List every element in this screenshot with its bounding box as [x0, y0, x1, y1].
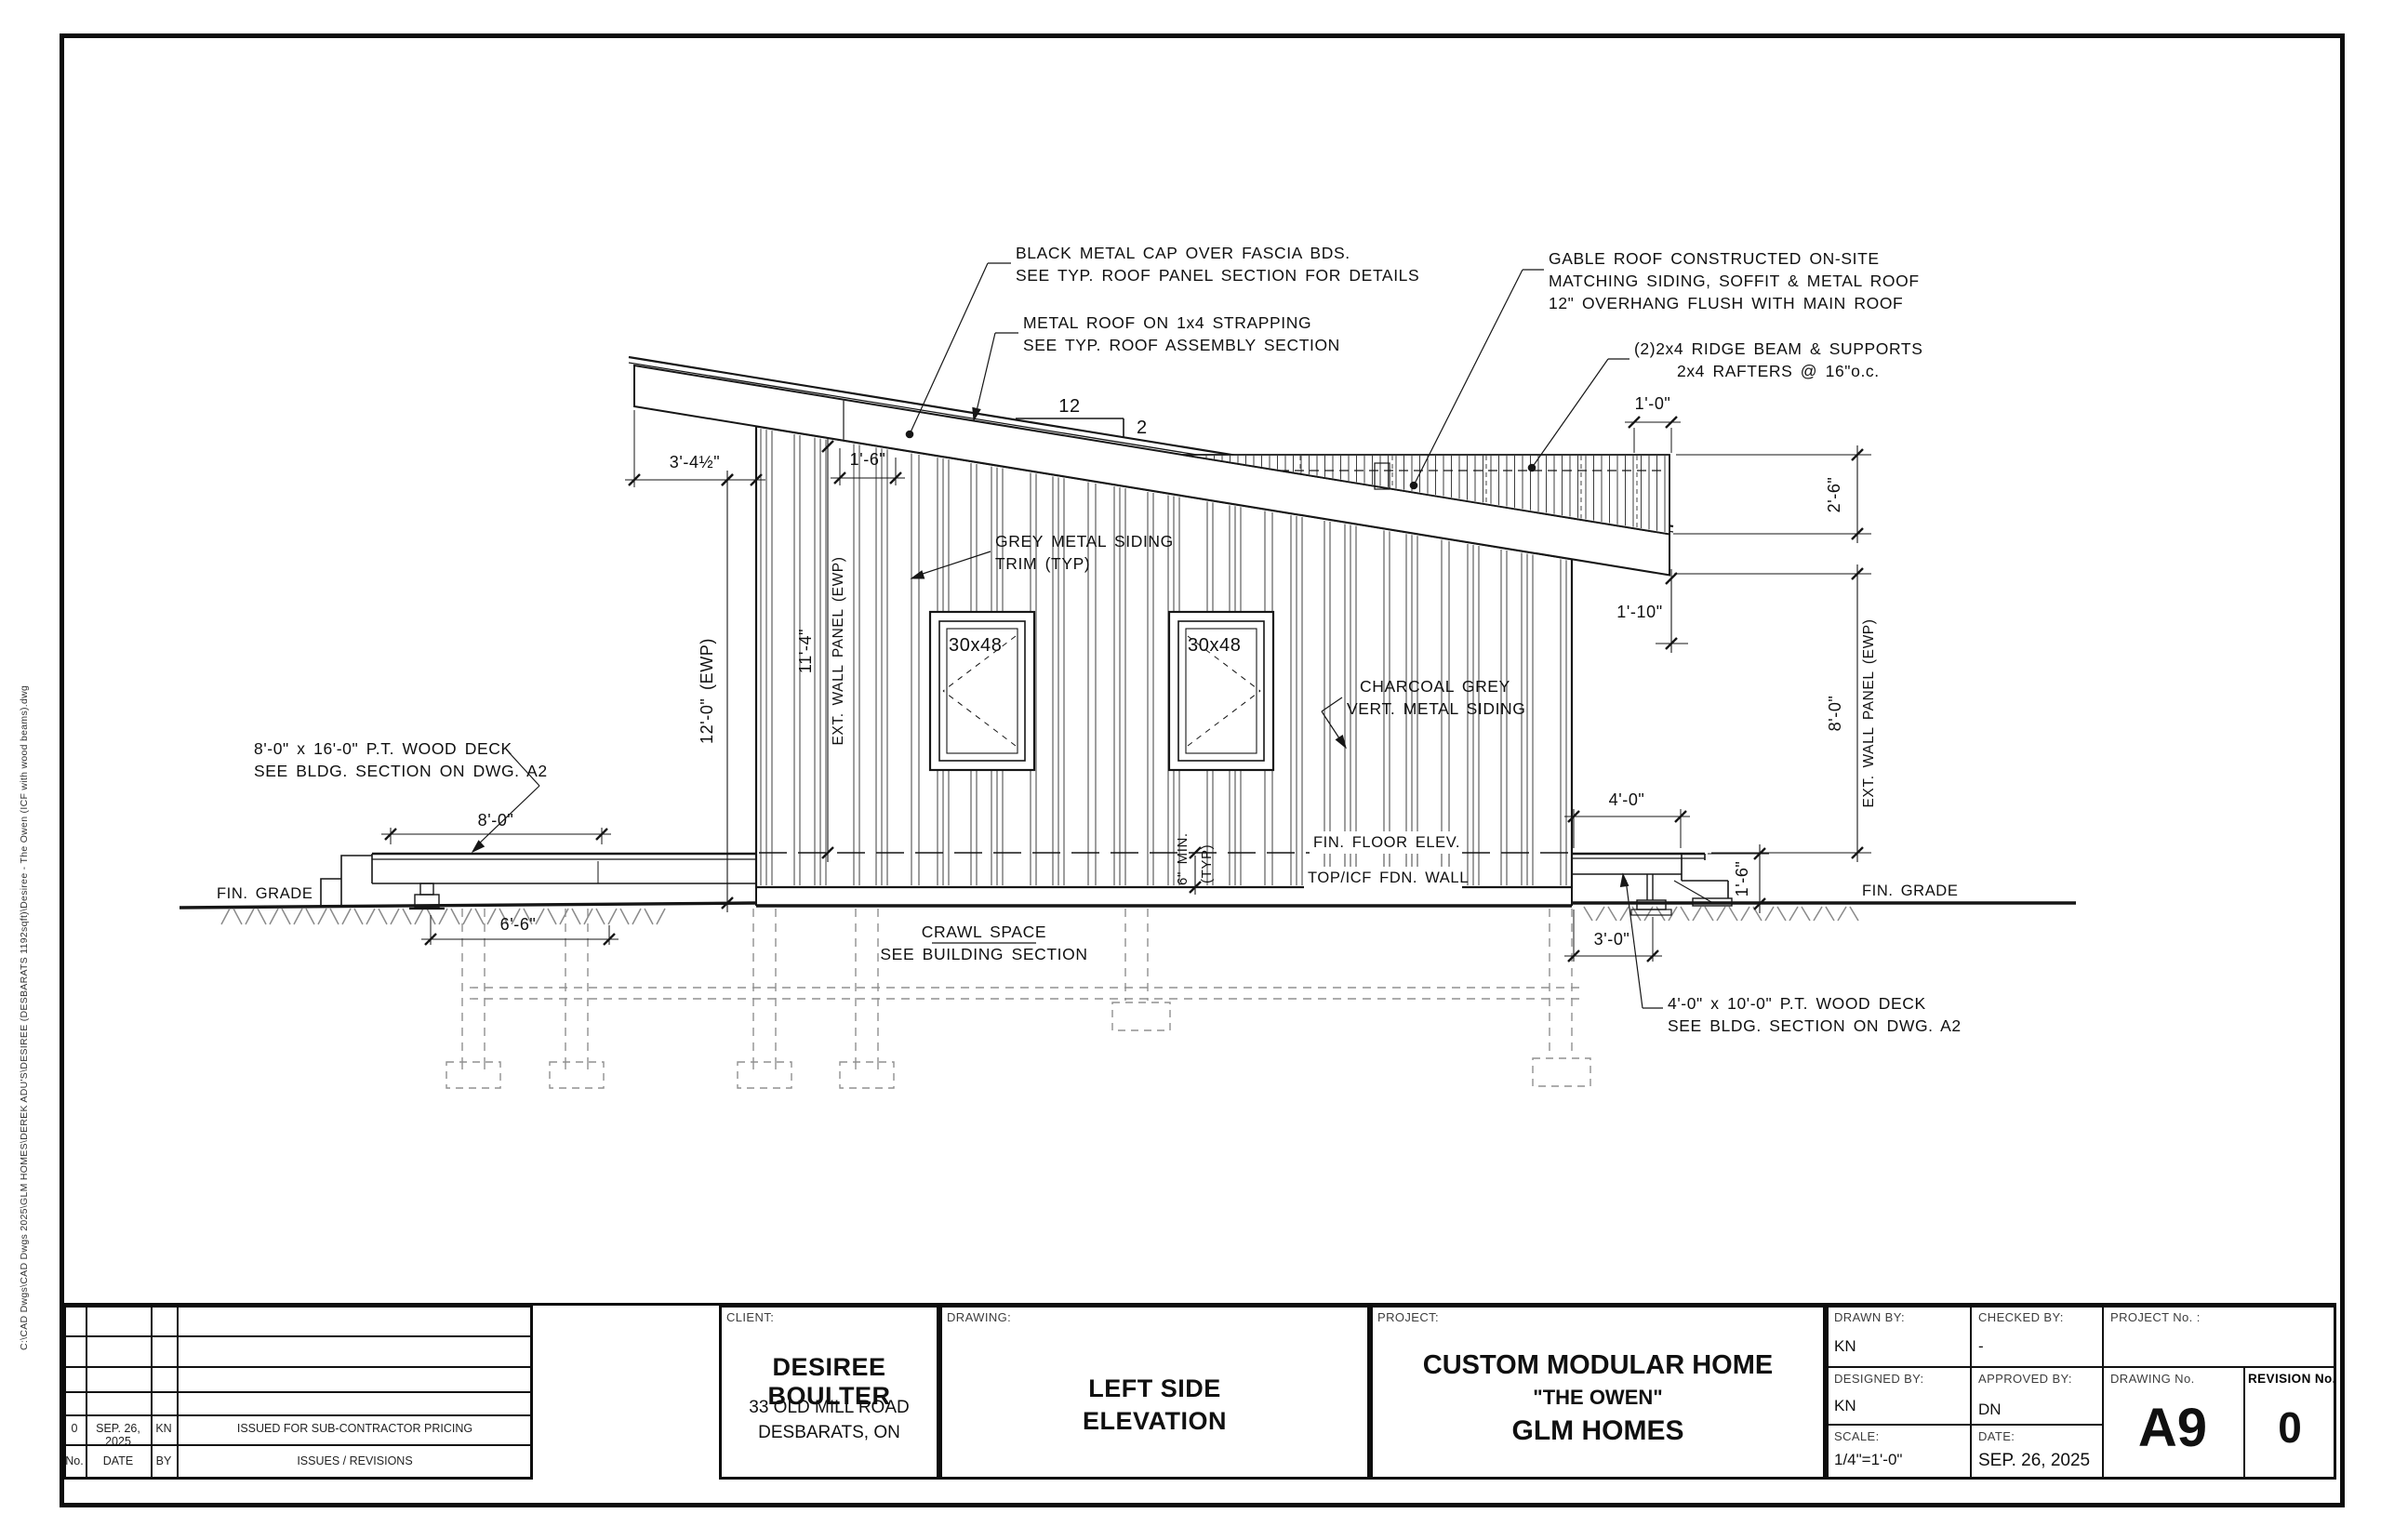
line — [1741, 907, 1749, 921]
line — [487, 909, 496, 924]
project-no-label: PROJECT No. : — [2110, 1310, 2201, 1324]
approved-by-label: APPROVED BY: — [1978, 1372, 2072, 1386]
line — [1596, 907, 1604, 921]
line — [572, 909, 580, 924]
line — [657, 909, 665, 924]
drawing-no-label: DRAWING No. — [2110, 1372, 2195, 1386]
deck-steps-left — [321, 856, 372, 906]
rev-entry-date: SEP. 26, 2025 — [86, 1422, 151, 1448]
dim-8-0-deck: 8'-0" — [478, 811, 514, 830]
project-label: PROJECT: — [1377, 1310, 1439, 1324]
line — [1729, 907, 1737, 921]
drawing-sheet: C:\CAD Dwgs\CAD Dwgs 2025\GLM HOMES\DERE… — [0, 0, 2381, 1540]
designed-by-label: DESIGNED BY: — [1834, 1372, 1924, 1386]
typ-label: (TYP) — [1199, 844, 1215, 883]
drawing-no-value: A9 — [2102, 1397, 2243, 1459]
slope-run-label: 2 — [1137, 418, 1148, 438]
drawing-title-line2: ELEVATION — [939, 1407, 1370, 1436]
slope-rise-label: 12 — [1058, 396, 1080, 417]
line — [391, 909, 399, 924]
line — [1765, 907, 1774, 921]
drawing-label: DRAWING: — [947, 1310, 1011, 1324]
note-black-cap-2: SEE TYP. ROOF PANEL SECTION FOR DETAILS — [1016, 266, 1419, 285]
dim-3-4half: 3'-4½" — [670, 453, 720, 471]
rev-header-by: BY — [151, 1454, 177, 1467]
line — [1850, 907, 1858, 921]
line — [246, 909, 254, 924]
line — [330, 909, 339, 924]
line — [1705, 907, 1713, 921]
rev-row-line — [66, 1335, 530, 1337]
line — [439, 909, 447, 924]
line — [294, 909, 302, 924]
line — [1717, 907, 1725, 921]
note-gable-2: MATCHING SIDING, SOFFIT & METAL ROOF — [1549, 272, 1920, 290]
line — [451, 909, 459, 924]
line — [318, 909, 326, 924]
note-siding-2: VERT. METAL SIDING — [1347, 699, 1525, 718]
dim-1-0: 1'-0" — [1635, 394, 1671, 413]
dim-11-4: 11'-4" — [796, 629, 815, 673]
line — [415, 909, 423, 924]
line — [1681, 907, 1689, 921]
dim-4-0: 4'-0" — [1609, 790, 1645, 809]
revision-no-label: REVISION No. — [2248, 1372, 2336, 1386]
rev-header-no: No. — [63, 1454, 86, 1467]
rev-header-date: DATE — [86, 1454, 151, 1467]
info-row-line — [1829, 1366, 2334, 1368]
dim-8-0-ewp: 8'-0" — [1826, 696, 1844, 732]
dim-2-6: 2'-6" — [1825, 477, 1843, 513]
footing — [1533, 1058, 1590, 1086]
line — [282, 909, 290, 924]
note-gable-3: 12" OVERHANG FLUSH WITH MAIN ROOF — [1549, 294, 1903, 312]
leader-arrow — [472, 841, 484, 852]
dim-12-0-ewp: 12'-0" (EWP) — [698, 638, 716, 744]
line — [306, 909, 314, 924]
project-line2: "THE OWEN" — [1370, 1386, 1826, 1410]
note-metal-roof-2: SEE TYP. ROOF ASSEMBLY SECTION — [1023, 336, 1340, 354]
footing — [738, 1062, 791, 1088]
drawing-title-line1: LEFT SIDE — [939, 1374, 1370, 1403]
dim-1-6-top: 1'-6" — [850, 450, 886, 469]
fin-grade-left-label: FIN. GRADE — [217, 885, 313, 902]
leader-dot — [906, 431, 914, 439]
line — [1644, 907, 1653, 921]
line — [1826, 907, 1834, 921]
line — [403, 909, 411, 924]
footing — [550, 1062, 604, 1088]
line — [536, 909, 544, 924]
rev-entry-by: KN — [151, 1422, 177, 1435]
drawn-by-label: DRAWN BY: — [1834, 1310, 1905, 1324]
rev-entry-desc: ISSUED FOR SUB-CONTRACTOR PRICING — [177, 1422, 533, 1435]
rev-col-line — [177, 1308, 179, 1477]
fin-grade-right-label: FIN. GRADE — [1862, 883, 1958, 899]
note-metal-roof-1: METAL ROOF ON 1x4 STRAPPING — [1023, 313, 1311, 332]
line — [560, 909, 568, 924]
dim-6-6: 6'-6" — [500, 915, 537, 934]
line — [548, 909, 556, 924]
scale-value: 1/4"=1'-0" — [1834, 1451, 1902, 1469]
revision-no-value: 0 — [2243, 1402, 2336, 1453]
line — [258, 909, 266, 924]
line — [1584, 907, 1592, 921]
rect — [420, 883, 433, 895]
line — [221, 909, 230, 924]
rev-col-line — [151, 1308, 153, 1477]
rev-col-line — [86, 1308, 87, 1477]
info-col-line — [1970, 1308, 1972, 1477]
info-row-line — [1829, 1424, 2102, 1426]
line — [233, 909, 242, 924]
line — [645, 909, 653, 924]
note-deck-left-2: SEE BLDG. SECTION ON DWG. A2 — [254, 762, 548, 780]
client-label: CLIENT: — [726, 1310, 774, 1324]
note-siding-1: CHARCOAL GREY — [1360, 677, 1510, 696]
date-value: SEP. 26, 2025 — [1978, 1451, 2090, 1471]
dim-1-10: 1'-10" — [1616, 603, 1662, 621]
line — [475, 909, 484, 924]
rev-header-desc: ISSUES / REVISIONS — [177, 1454, 533, 1467]
leader-dot — [1410, 482, 1418, 490]
drawn-by-value: KN — [1834, 1337, 1856, 1356]
note-deck-left-1: 8'-0" x 16'-0" P.T. WOOD DECK — [254, 739, 512, 758]
crawl-space-sub-label: SEE BUILDING SECTION — [880, 945, 1087, 963]
line — [342, 909, 351, 924]
line — [1669, 907, 1677, 921]
line — [180, 903, 756, 908]
line — [1802, 907, 1810, 921]
client-address2: DESBARATS, ON — [719, 1423, 939, 1443]
note-ridge-2: 2x4 RAFTERS @ 16"o.c. — [1677, 362, 1880, 380]
project-line3: GLM HOMES — [1370, 1415, 1826, 1447]
line — [976, 333, 995, 415]
note-ridge-1: (2)2x4 RIDGE BEAM & SUPPORTS — [1634, 339, 1923, 358]
checked-by-value: - — [1978, 1337, 1984, 1356]
line — [1838, 907, 1846, 921]
window-size-label: 30x48 — [1188, 635, 1242, 656]
checked-by-label: CHECKED BY: — [1978, 1310, 2064, 1324]
line — [596, 909, 605, 924]
note-trim-1: GREY METAL SIDING — [995, 532, 1174, 551]
fin-floor-label: FIN. FLOOR ELEV. — [1313, 834, 1460, 851]
leader-arrow — [1620, 874, 1628, 886]
rev-entry-no: 0 — [63, 1422, 86, 1435]
window-size-label: 30x48 — [949, 635, 1003, 656]
rev-row-line — [66, 1391, 530, 1393]
line — [354, 909, 363, 924]
dim-1-6-right: 1'-6" — [1733, 861, 1751, 897]
note-gable-1: GABLE ROOF CONSTRUCTED ON-SITE — [1549, 249, 1880, 268]
line — [1789, 907, 1798, 921]
top-icf-label: TOP/ICF FDN. WALL — [1308, 870, 1469, 886]
note-trim-2: TRIM (TYP) — [995, 554, 1090, 573]
line — [620, 909, 629, 924]
line — [463, 909, 472, 924]
footing — [840, 1062, 894, 1088]
dim-3-0: 3'-0" — [1594, 930, 1630, 949]
crawl-space-label: CRAWL SPACE — [922, 923, 1046, 941]
line — [1608, 907, 1616, 921]
min-6-label: 6" MIN. — [1175, 832, 1190, 885]
rev-row-line — [66, 1366, 530, 1368]
approved-by-value: DN — [1978, 1401, 2002, 1419]
scale-label: SCALE: — [1834, 1429, 1880, 1443]
line — [1814, 907, 1822, 921]
note-deck-right-2: SEE BLDG. SECTION ON DWG. A2 — [1668, 1016, 1962, 1035]
designed-by-value: KN — [1834, 1397, 1856, 1415]
line — [379, 909, 387, 924]
note-black-cap-1: BLACK METAL CAP OVER FASCIA BDS. — [1016, 244, 1350, 262]
footing — [446, 1062, 500, 1088]
note-deck-right-1: 4'-0" x 10'-0" P.T. WOOD DECK — [1668, 994, 1926, 1013]
line — [1414, 270, 1523, 485]
line — [608, 909, 617, 924]
date-label: DATE: — [1978, 1429, 2015, 1443]
line — [1656, 907, 1665, 921]
line — [1777, 907, 1786, 921]
rev-row-line — [66, 1414, 530, 1416]
line — [366, 909, 375, 924]
footing — [1112, 1002, 1170, 1030]
dim-ewp-right-label: EXT. WALL PANEL (EWP) — [1861, 618, 1877, 807]
line — [1693, 907, 1701, 921]
line — [632, 909, 641, 924]
dim-ewp-left-label: EXT. WALL PANEL (EWP) — [831, 556, 846, 745]
client-address1: 33 OLD MILL ROAD — [719, 1398, 939, 1418]
line — [1532, 359, 1608, 468]
leader-dot — [1528, 464, 1536, 472]
line — [1620, 907, 1629, 921]
line — [270, 909, 278, 924]
project-line1: CUSTOM MODULAR HOME — [1370, 1350, 1826, 1381]
